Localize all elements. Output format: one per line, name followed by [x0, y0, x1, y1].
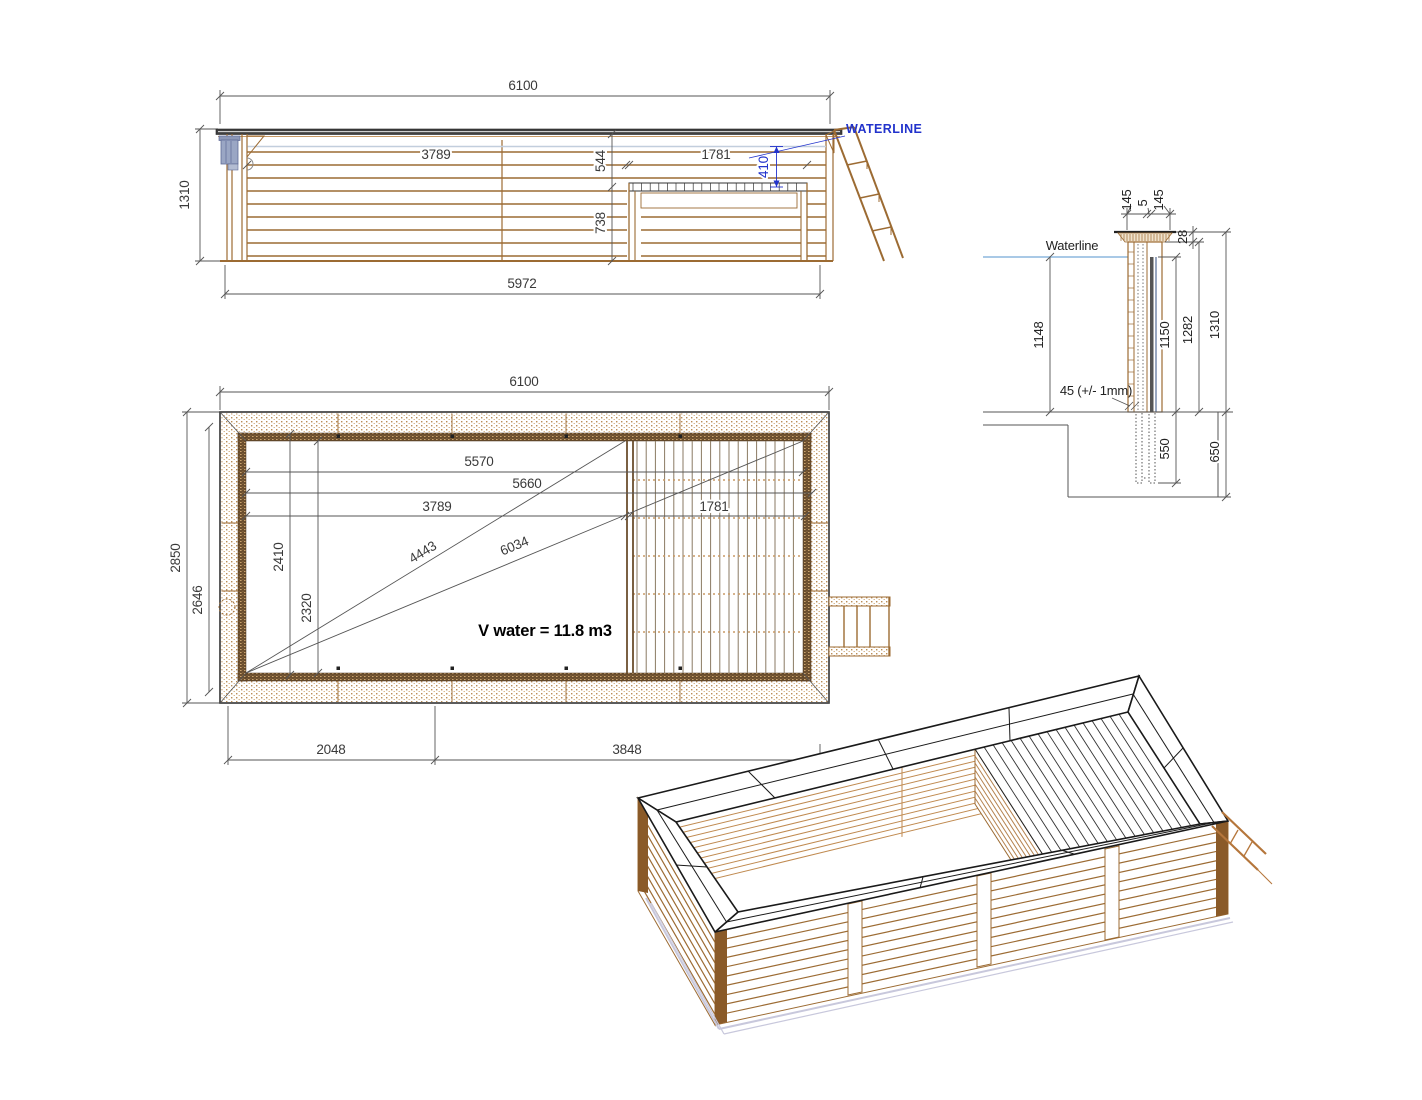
drawing-sheet: 6100 1310: [0, 0, 1422, 1100]
section-dim-1282: 1282: [1180, 316, 1195, 344]
section-waterline-label: Waterline: [1046, 238, 1099, 253]
plan-dim-2850-label: 2850: [168, 543, 183, 572]
elevation-waterline-label: WATERLINE: [846, 122, 922, 136]
plan-dim-1781: 1781: [699, 499, 728, 514]
plan-dim-5660: 5660: [512, 476, 541, 491]
section-dim-550: 550: [1157, 438, 1172, 459]
elevation-dim-width-top: [216, 90, 834, 124]
section-note-45: 45 (+/- 1mm): [1060, 383, 1132, 398]
section-view: Waterline: [983, 189, 1233, 501]
plan-dim-width-top: [216, 386, 833, 410]
section-dim-145b: 145: [1151, 189, 1166, 210]
section-dim-650: 650: [1207, 441, 1222, 462]
plan-dim-2320: 2320: [299, 593, 314, 622]
plan-dim-2646-label: 2646: [190, 585, 205, 614]
plan-ladder: [829, 597, 890, 656]
elevation-dim-544: 544: [593, 149, 608, 172]
elevation-deck: [629, 183, 807, 261]
plan-dim-6100: 6100: [509, 374, 538, 389]
elevation-dim-1781: 1781: [701, 147, 730, 162]
section-cap: [1114, 232, 1176, 242]
plan-dim-3789: 3789: [422, 499, 451, 514]
plan-outer-frame: [220, 412, 829, 703]
elevation-dim-height: [195, 125, 220, 265]
section-dim-1310: 1310: [1207, 311, 1222, 339]
elevation-ladder: [826, 127, 903, 261]
section-dim-145a: 145: [1119, 189, 1134, 210]
elevation-view: 6100 1310: [177, 78, 922, 299]
plan-dim-2048: 2048: [316, 742, 345, 757]
plan-dim-3848: 3848: [612, 742, 641, 757]
iso-corner-post-near: [715, 930, 727, 1026]
plan-view: 6100 2850 2646 2048 3848: [168, 374, 890, 765]
plan-dim-bottom: [224, 706, 824, 765]
elevation-dim-6100: 6100: [508, 78, 537, 93]
elevation-dim-738: 738: [593, 212, 608, 234]
elevation-dim-1310: 1310: [177, 180, 192, 209]
section-ground: [983, 412, 1233, 497]
section-dim-5: 5: [1135, 199, 1150, 206]
iso-view: [638, 676, 1272, 1034]
elevation-dim-5972: 5972: [507, 276, 536, 291]
section-dim-1150: 1150: [1157, 321, 1172, 348]
plan-dim-2646: [205, 423, 213, 696]
plan-dim-2850: [182, 408, 220, 707]
section-dim-28-label: 28: [1175, 230, 1190, 244]
section-dim-1148: 1148: [1031, 321, 1046, 348]
section-buried-posts: [1136, 412, 1155, 483]
elevation-dim-3789: 3789: [421, 147, 450, 162]
elevation-structure: [216, 127, 903, 261]
liner-layer: [1150, 257, 1154, 412]
elevation-dim-410-label: 410: [756, 156, 771, 178]
plan-volume-label: V water = 11.8 m3: [478, 622, 612, 640]
pool-technical-drawing: 6100 1310: [0, 0, 1422, 1100]
plan-dim-5570: 5570: [464, 454, 493, 469]
plan-dim-2410: 2410: [271, 542, 286, 571]
